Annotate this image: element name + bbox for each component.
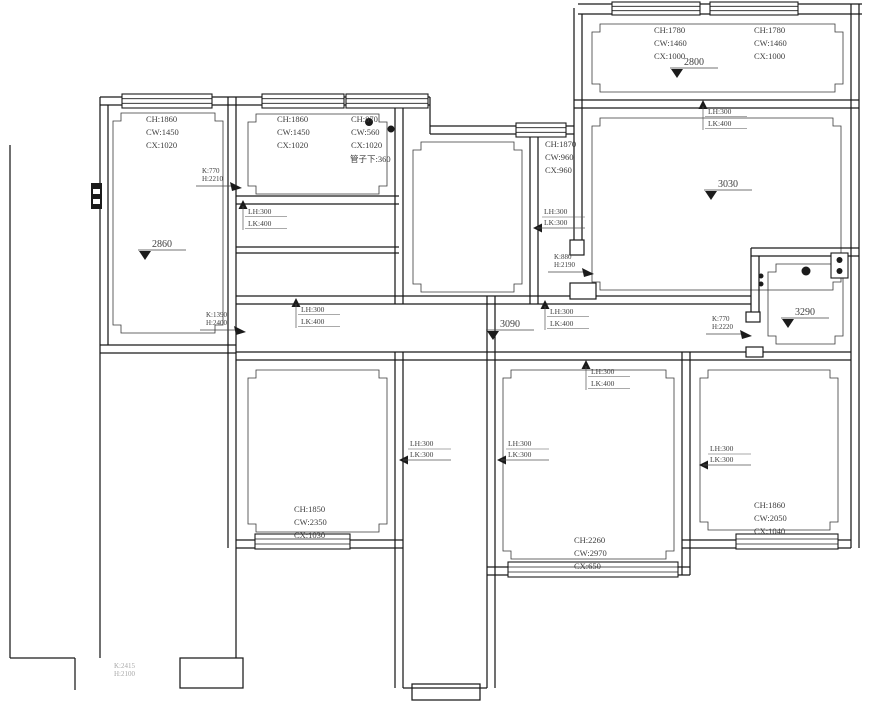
elevation-value: 3290 [795,307,815,318]
wall-segment [412,684,480,700]
beam-label: LH:300 [550,307,574,316]
label-dot [388,126,395,133]
window-dimension-label: CH:870 [351,114,378,124]
window-dimension-label: CW:2050 [754,513,787,523]
beam-label: LK:300 [710,455,734,464]
beam-label: LH:300 [544,207,568,216]
window-dimension-label: CX:1030 [294,530,325,540]
beam-label: LK:300 [544,218,568,227]
window-dimension-label: CX:1020 [146,140,177,150]
door-size-label: K:770 [202,167,220,175]
window-dimension-label: CH:1870 [545,139,576,149]
beam-label: LH:300 [591,367,615,376]
beam-label: LH:300 [708,107,732,116]
beam-label: LK:400 [248,219,272,228]
door-size-label: K:880 [554,253,572,261]
elevation-value: 3090 [500,319,520,330]
elevation-triangle [139,251,151,260]
door-size-label: K:770 [712,315,730,323]
door-jamb [570,240,584,255]
door-size-label: H:2400 [206,319,228,327]
elevation-value: 2860 [152,239,172,250]
electrical-panel [93,189,100,194]
socket-double-box [837,268,843,274]
window-symbol [736,534,838,549]
socket-double-box [831,253,848,278]
elevation-triangle [671,69,683,78]
fixture-symbols [91,118,848,287]
window-dimension-label: CX:1040 [754,526,785,536]
beam-label: LK:400 [301,317,325,326]
window-dimension-label: CW:1450 [277,127,310,137]
beam-label: LK:300 [508,450,532,459]
window-dimension-label: CX:1000 [654,51,685,61]
window-dimension-label: CX:960 [545,165,572,175]
beam-label: LK:400 [708,119,732,128]
window-dimension-label: CH:1860 [277,114,308,124]
floor-plan-drawing: CH:1860CW:1450CX:1020CH:1860CW:1450CX:10… [0,0,873,710]
beam-label: LH:300 [710,444,734,453]
door-size-label: H:2100 [114,670,136,678]
wall-socket-dot [759,274,764,279]
door-jamb [746,347,763,357]
window-dimension-label: CW:1460 [754,38,787,48]
elevation-triangle [782,319,794,328]
window-dimension-label: CW:1450 [146,127,179,137]
window-symbol [122,94,212,108]
window-symbol [262,94,344,108]
window-dimension-label: CW:2970 [574,548,607,558]
note-label: 管子下:360 [350,154,391,164]
window-dimension-label: CW:560 [351,127,380,137]
door-leader-arrow [740,330,752,339]
window-dimension-label: CH:1780 [654,25,685,35]
window-symbol [346,94,428,108]
beam-label: LH:300 [508,439,532,448]
floor-plan-canvas: CH:1860CW:1450CX:1020CH:1860CW:1450CX:10… [0,0,873,710]
window-symbol [612,2,700,15]
room-inner-outline [413,142,522,292]
beam-label: LK:300 [410,450,434,459]
window-dimension-label: CH:1850 [294,504,325,514]
window-dimension-label: CH:2260 [574,535,605,545]
door-jambs [570,240,763,357]
door-leader-arrow [234,326,246,335]
wall-segment [180,658,243,688]
window-symbol [710,2,798,15]
window-dimension-label: CX:650 [574,561,601,571]
window-dimension-label: CW:2350 [294,517,327,527]
window-dimension-label: CX:1000 [754,51,785,61]
ceiling-light-dot [802,267,811,276]
door-jamb [746,312,760,322]
wall-socket-dot [759,282,764,287]
window-dimension-label: CW:960 [545,152,574,162]
elevation-triangle [705,191,717,200]
room-inner-outlines [113,24,843,559]
door-size-label: K:2415 [114,662,136,670]
elevation-value: 3030 [718,179,738,190]
beam-label: LK:400 [591,379,615,388]
elevation-value: 2800 [684,57,704,68]
door-size-label: H:2190 [554,261,576,269]
beam-label: LH:300 [410,439,434,448]
window-symbols [122,2,838,577]
electrical-panel [93,199,100,204]
elevation-triangle [487,331,499,340]
electrical-panel [91,183,102,209]
door-size-label: K:1390 [206,311,228,319]
window-dimension-label: CH:1860 [146,114,177,124]
door-size-label: H:2210 [202,175,224,183]
room-inner-outline [503,370,674,559]
beam-label: LK:400 [550,319,574,328]
socket-double-box [837,257,843,263]
beam-label: LH:300 [248,207,272,216]
beam-label: LH:300 [301,305,325,314]
window-dimension-label: CX:1020 [351,140,382,150]
window-dimension-label: CX:1020 [277,140,308,150]
window-dimension-label: CW:1460 [654,38,687,48]
door-size-label: H:2220 [712,323,734,331]
window-dimension-label: CH:1780 [754,25,785,35]
door-jamb [570,283,596,299]
room-inner-outline [592,24,843,92]
window-dimension-label: CH:1860 [754,500,785,510]
window-symbol [516,123,566,137]
